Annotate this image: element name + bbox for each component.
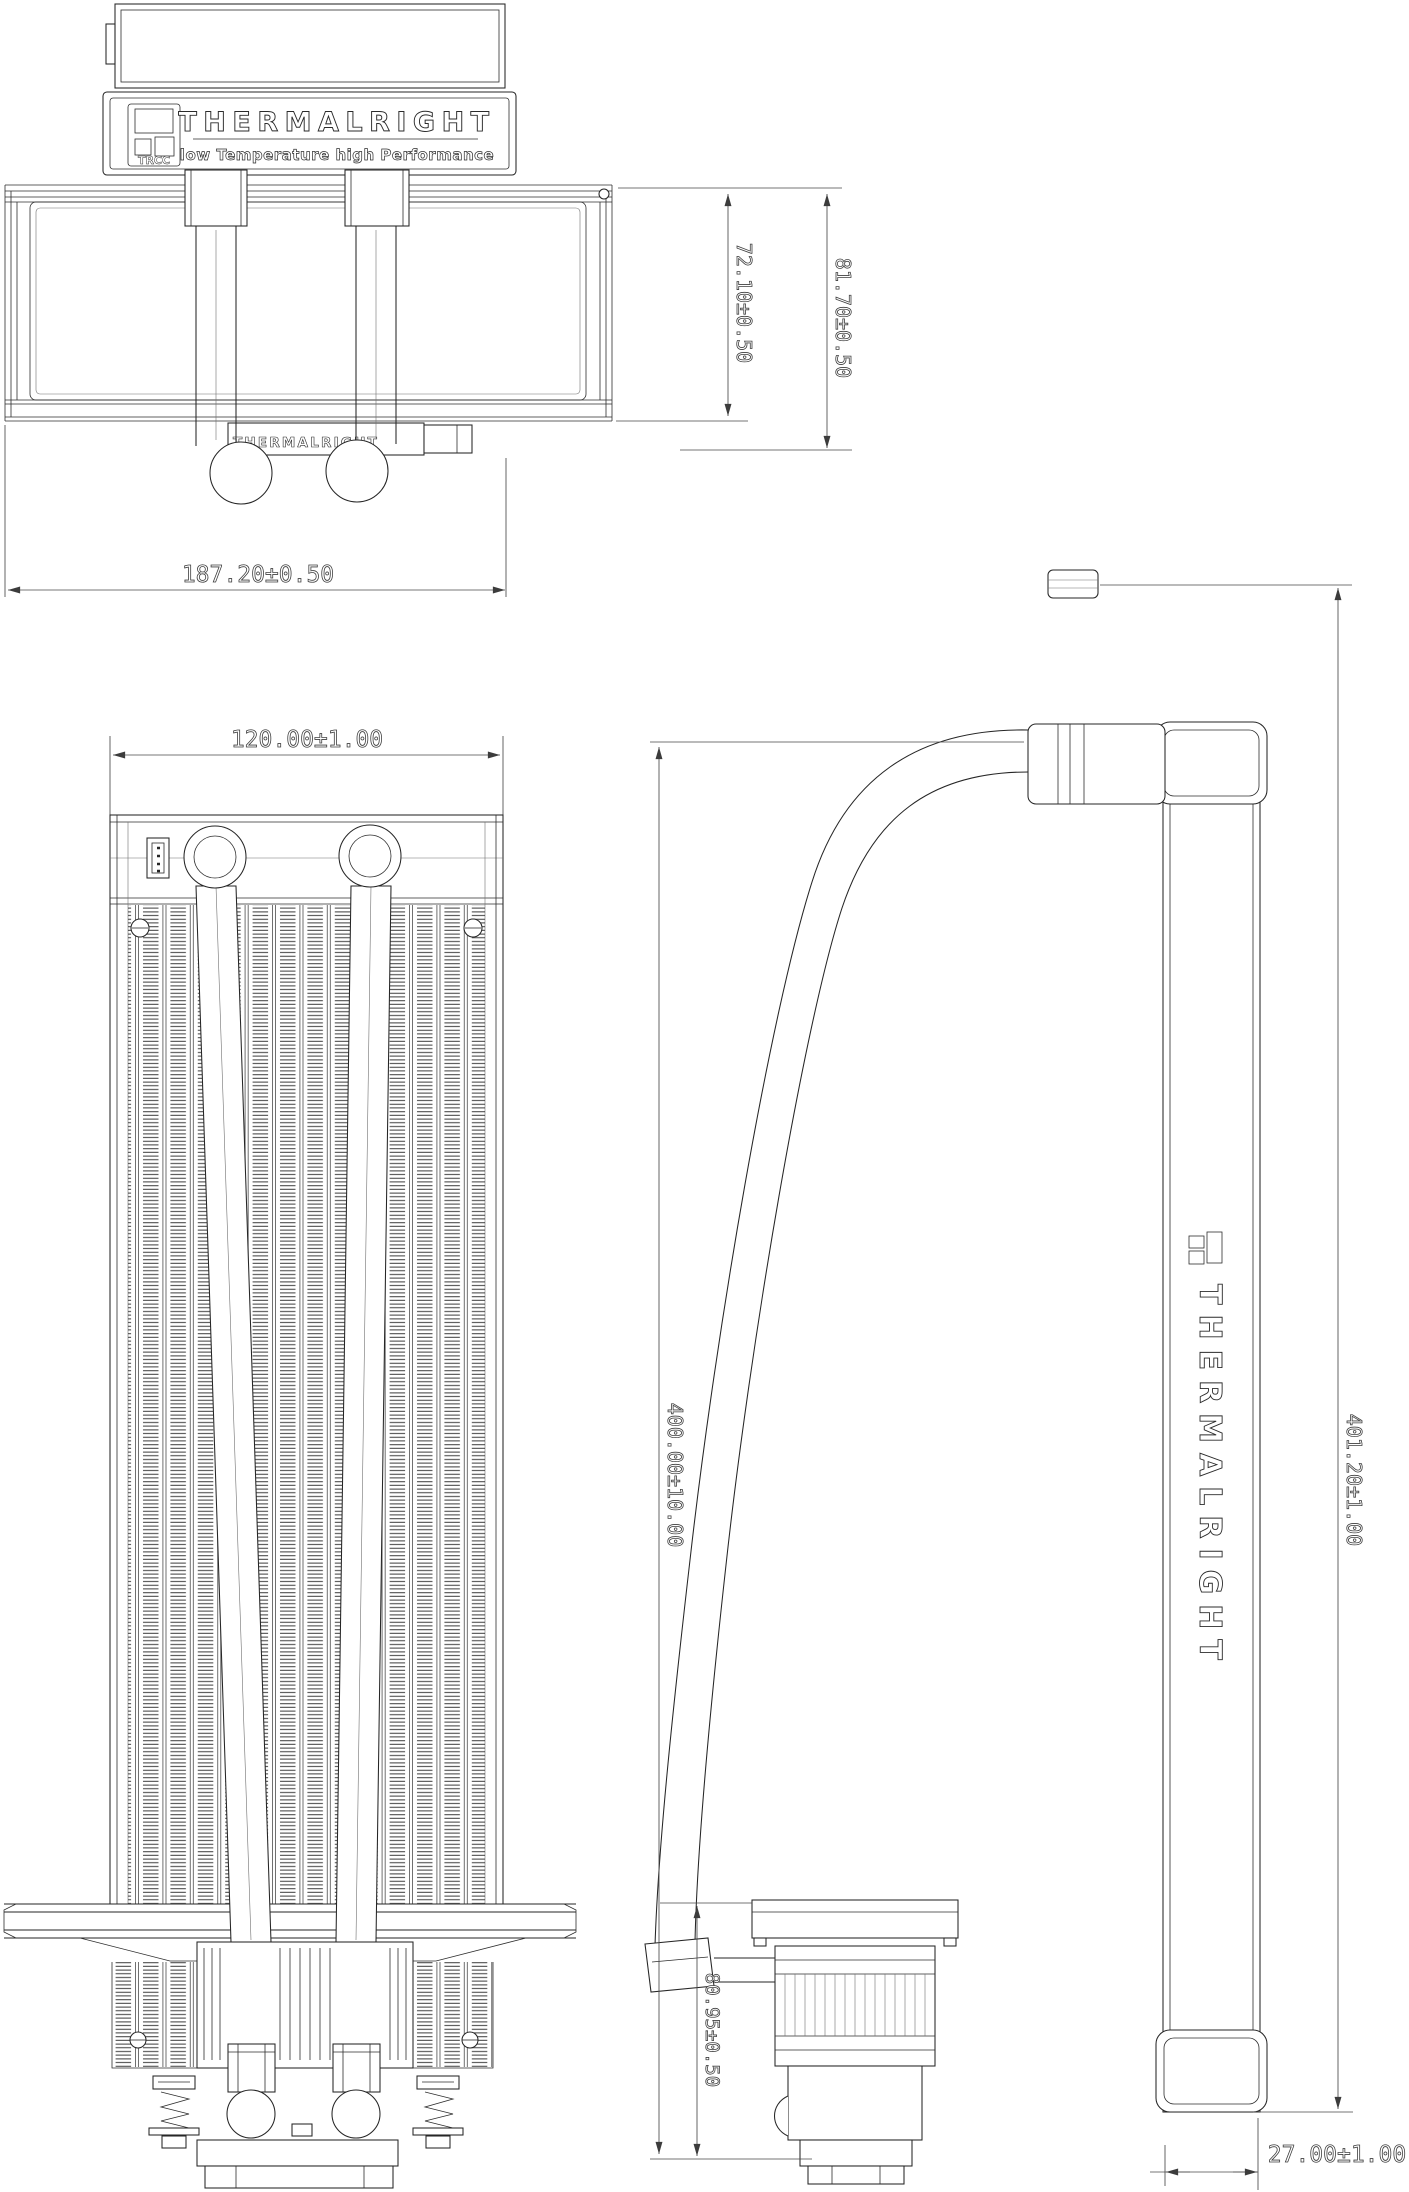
pump-side-view — [752, 1900, 958, 2184]
dim-overall-height: 401.20±1.00 — [1342, 1414, 1366, 1546]
side-bar-brand-text: THERMALRIGHT — [1192, 1284, 1227, 1670]
brand-wordmark: THERMALRIGHT — [178, 107, 495, 138]
pump-assembly-front — [112, 1942, 493, 2188]
cable-connector-icon — [1048, 570, 1098, 598]
cold-plate — [197, 2140, 398, 2166]
bar-top-cap — [1156, 722, 1267, 804]
tube-bend — [227, 2090, 275, 2138]
trcc-badge-icon — [1189, 1232, 1222, 1264]
bar-bottom-cap — [1156, 2030, 1267, 2112]
fan-connector-icon — [147, 838, 169, 878]
spring-screw-icon — [149, 2076, 199, 2148]
brand-tagline: low Temperature high Performance — [180, 146, 494, 164]
trcc-badge-text: TRCC — [138, 154, 170, 167]
pump-top-housing — [115, 4, 505, 88]
dim-radiator-length: 187.20±0.50 — [182, 562, 334, 588]
side-view-dimensions: 400.00±10.00 80.95±0.50 401.20±1.00 27.0… — [650, 585, 1406, 2190]
cold-plate — [800, 2140, 912, 2166]
dim-radiator-width: 120.00±1.00 — [231, 727, 383, 753]
top-view: TRCC THERMALRIGHT low Temperature high P… — [5, 4, 855, 597]
radiator-front-view — [110, 815, 503, 1937]
dim-pump-height: 80.95±0.50 — [701, 1973, 723, 2087]
tube-fitting-ring — [339, 825, 401, 887]
pump-lower-housing — [788, 2066, 922, 2140]
tube-fitting-block — [1028, 724, 1165, 804]
cooler-technical-drawing: TRCC THERMALRIGHT low Temperature high P… — [0, 0, 1409, 2192]
radiator-top-view — [5, 185, 612, 421]
tube-gland — [228, 2044, 275, 2092]
dim-side-thickness: 27.00±1.00 — [1268, 2142, 1406, 2168]
tube-gland — [333, 2044, 380, 2092]
dim-total-height-top: 81.70±0.50 — [831, 258, 855, 378]
tube-fitting — [345, 170, 409, 226]
pump-side-tab — [106, 24, 115, 64]
tube-fitting-ring — [184, 826, 246, 888]
top-view-dimensions: 72.10±0.50 81.70±0.50 187.20±0.50 — [5, 188, 855, 597]
spring-screw-icon — [413, 2076, 463, 2148]
tube-bend — [326, 440, 388, 502]
radiator-fins — [128, 905, 485, 1925]
side-bar: THERMALRIGHT — [1156, 722, 1267, 2112]
tube-fitting — [185, 170, 247, 226]
fill-port-icon — [599, 189, 609, 199]
tube-side-view — [645, 730, 1028, 1992]
dim-tube-length: 400.00±10.00 — [663, 1403, 687, 1548]
dim-radiator-height: 72.10±0.50 — [732, 243, 756, 363]
pump-top-plate — [752, 1900, 958, 1938]
logo-plate: TRCC THERMALRIGHT low Temperature high P… — [103, 92, 516, 175]
front-view: 120.00±1.00 — [4, 727, 576, 2188]
tube-bend — [332, 2090, 380, 2138]
side-view: THERMALRIGHT — [645, 570, 1406, 2190]
front-view-dimensions: 120.00±1.00 — [110, 727, 503, 816]
tube-bend — [210, 442, 272, 504]
